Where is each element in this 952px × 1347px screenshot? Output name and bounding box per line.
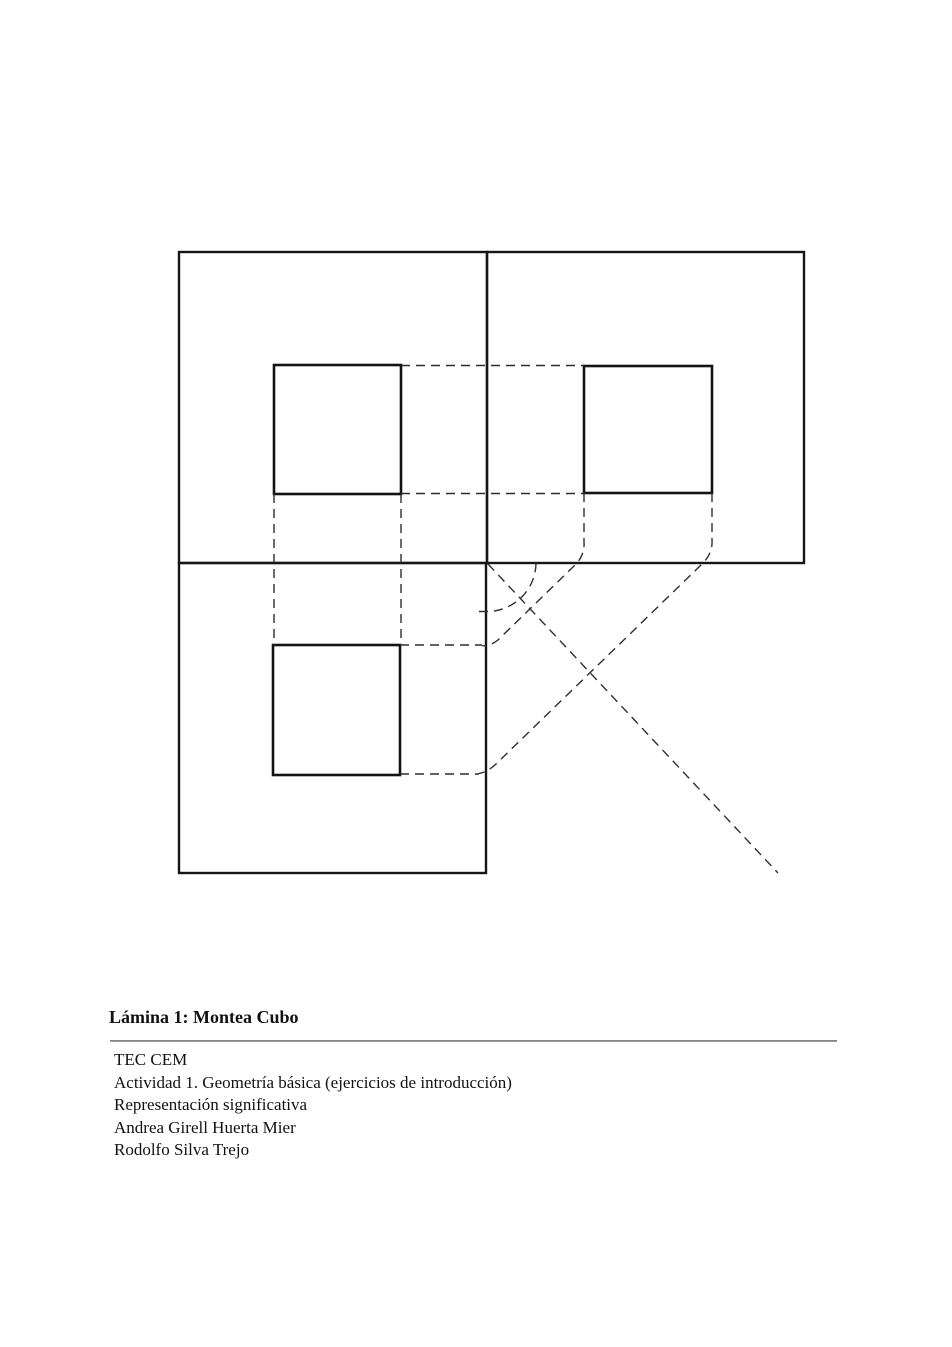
miter-line <box>488 564 778 873</box>
caption-divider <box>110 1040 837 1042</box>
construction-lines <box>274 366 778 874</box>
top-left-view-rect <box>179 252 487 563</box>
credit-line-activity: Actividad 1. Geometría básica (ejercicio… <box>114 1072 512 1095</box>
top-right-view-rect <box>487 252 804 563</box>
credit-line-institution: TEC CEM <box>114 1049 512 1072</box>
figure-caption: Lámina 1: Montea Cubo <box>109 1006 299 1028</box>
top-right-inner-square <box>584 366 712 493</box>
document-page: Lámina 1: Montea Cubo TEC CEM Actividad … <box>0 0 952 1347</box>
top-left-inner-square <box>274 365 401 494</box>
view-rectangles <box>179 252 804 873</box>
inner-squares <box>273 365 712 775</box>
transfer-arc <box>479 563 536 612</box>
credit-line-author-1: Andrea Girell Huerta Mier <box>114 1117 512 1140</box>
transfer-line-upper <box>482 493 584 646</box>
bottom-left-view-rect <box>179 563 486 873</box>
bottom-left-inner-square <box>273 645 400 775</box>
credit-line-author-2: Rodolfo Silva Trejo <box>114 1139 512 1162</box>
transfer-line-lower <box>479 493 712 774</box>
credit-line-topic: Representación significativa <box>114 1094 512 1117</box>
credits-block: TEC CEM Actividad 1. Geometría básica (e… <box>114 1049 512 1162</box>
